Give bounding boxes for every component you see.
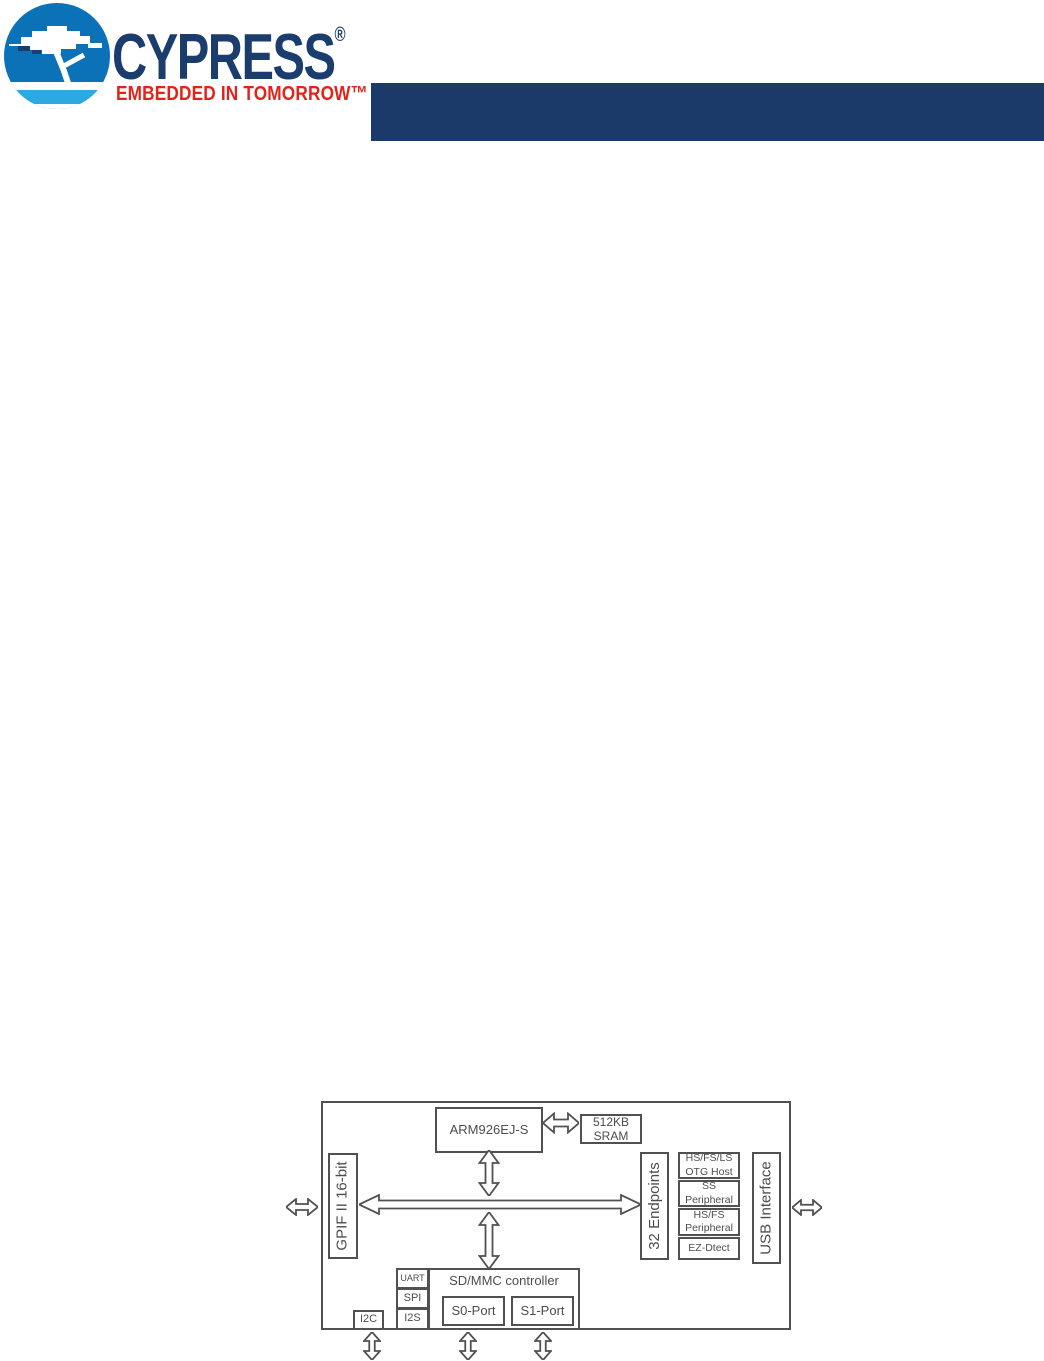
block-diagram: ARM926EJ-S 512KBSRAM GPIF II 16-bit 32 E… <box>283 1095 844 1361</box>
cypress-logo-icon <box>4 3 110 109</box>
block-ss-peripheral: SSPeripheral <box>678 1180 740 1207</box>
header-bar <box>371 83 1044 141</box>
usb-external-arrow-icon <box>792 1199 822 1216</box>
block-hsfs-peripheral: HS/FSPeripheral <box>678 1208 740 1236</box>
brand-tagline: EMBEDDED IN TOMORROW™ <box>116 84 368 105</box>
cpu-sram-arrow-icon <box>543 1112 579 1134</box>
block-32-endpoints: 32 Endpoints <box>640 1152 669 1260</box>
datasheet-page: CYPRESS® EMBEDDED IN TOMORROW™ ARM926EJ-… <box>0 0 1044 1361</box>
block-gpif-ii-16bit: GPIF II 16-bit <box>328 1153 358 1259</box>
block-sram: 512KBSRAM <box>580 1114 642 1144</box>
i2c-external-arrow-icon <box>363 1332 381 1360</box>
block-uart: UART <box>396 1268 429 1289</box>
block-s0-port: S0-Port <box>442 1296 505 1326</box>
sdmmc-controller-label: SD/MMC controller <box>430 1273 578 1289</box>
block-arm926ej-s: ARM926EJ-S <box>435 1107 543 1153</box>
bus-sdmmc-arrow-icon <box>478 1212 500 1269</box>
s0-port-external-arrow-icon <box>459 1332 477 1360</box>
block-ez-dtect: EZ-Dtect <box>678 1237 740 1260</box>
gpif-external-arrow-icon <box>286 1198 318 1216</box>
block-i2s: I2S <box>396 1308 429 1330</box>
block-usb-interface: USB Interface <box>752 1152 781 1264</box>
registered-mark: ® <box>334 24 345 46</box>
main-bus-arrow-icon <box>359 1194 641 1215</box>
block-s1-port: S1-Port <box>511 1296 574 1326</box>
cpu-bus-arrow-icon <box>478 1150 500 1196</box>
s1-port-external-arrow-icon <box>534 1332 552 1360</box>
block-spi: SPI <box>396 1288 429 1309</box>
brand-name: CYPRESS® <box>112 24 346 89</box>
block-i2c: I2C <box>353 1310 384 1330</box>
block-otg-host: HS/FS/LSOTG Host <box>678 1152 740 1179</box>
